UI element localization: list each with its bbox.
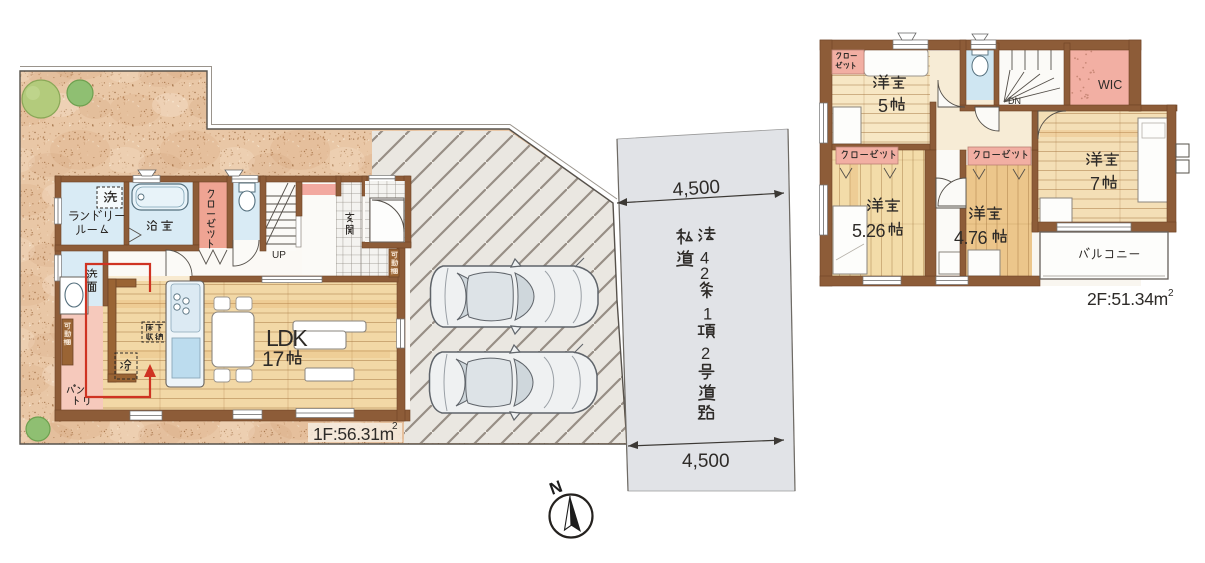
svg-text:1: 1 [703, 306, 712, 324]
svg-text:4,500: 4,500 [672, 177, 721, 201]
svg-text:UP: UP [272, 250, 286, 261]
svg-text:2F:51.34m: 2F:51.34m [1087, 289, 1168, 309]
svg-text:2: 2 [1168, 288, 1174, 299]
svg-text:2: 2 [701, 345, 710, 363]
svg-text:2: 2 [700, 265, 709, 283]
svg-text:5: 5 [878, 96, 888, 116]
svg-text:7: 7 [1090, 174, 1100, 194]
svg-text:5.26: 5.26 [852, 221, 886, 241]
svg-text:1F:56.31m: 1F:56.31m [313, 424, 394, 444]
svg-text:4.76: 4.76 [954, 228, 988, 248]
svg-text:4,500: 4,500 [682, 451, 730, 472]
svg-text:17: 17 [262, 348, 284, 371]
svg-text:2: 2 [392, 421, 398, 432]
svg-text:DN: DN [1008, 96, 1021, 106]
svg-text:WIC: WIC [1098, 78, 1122, 92]
